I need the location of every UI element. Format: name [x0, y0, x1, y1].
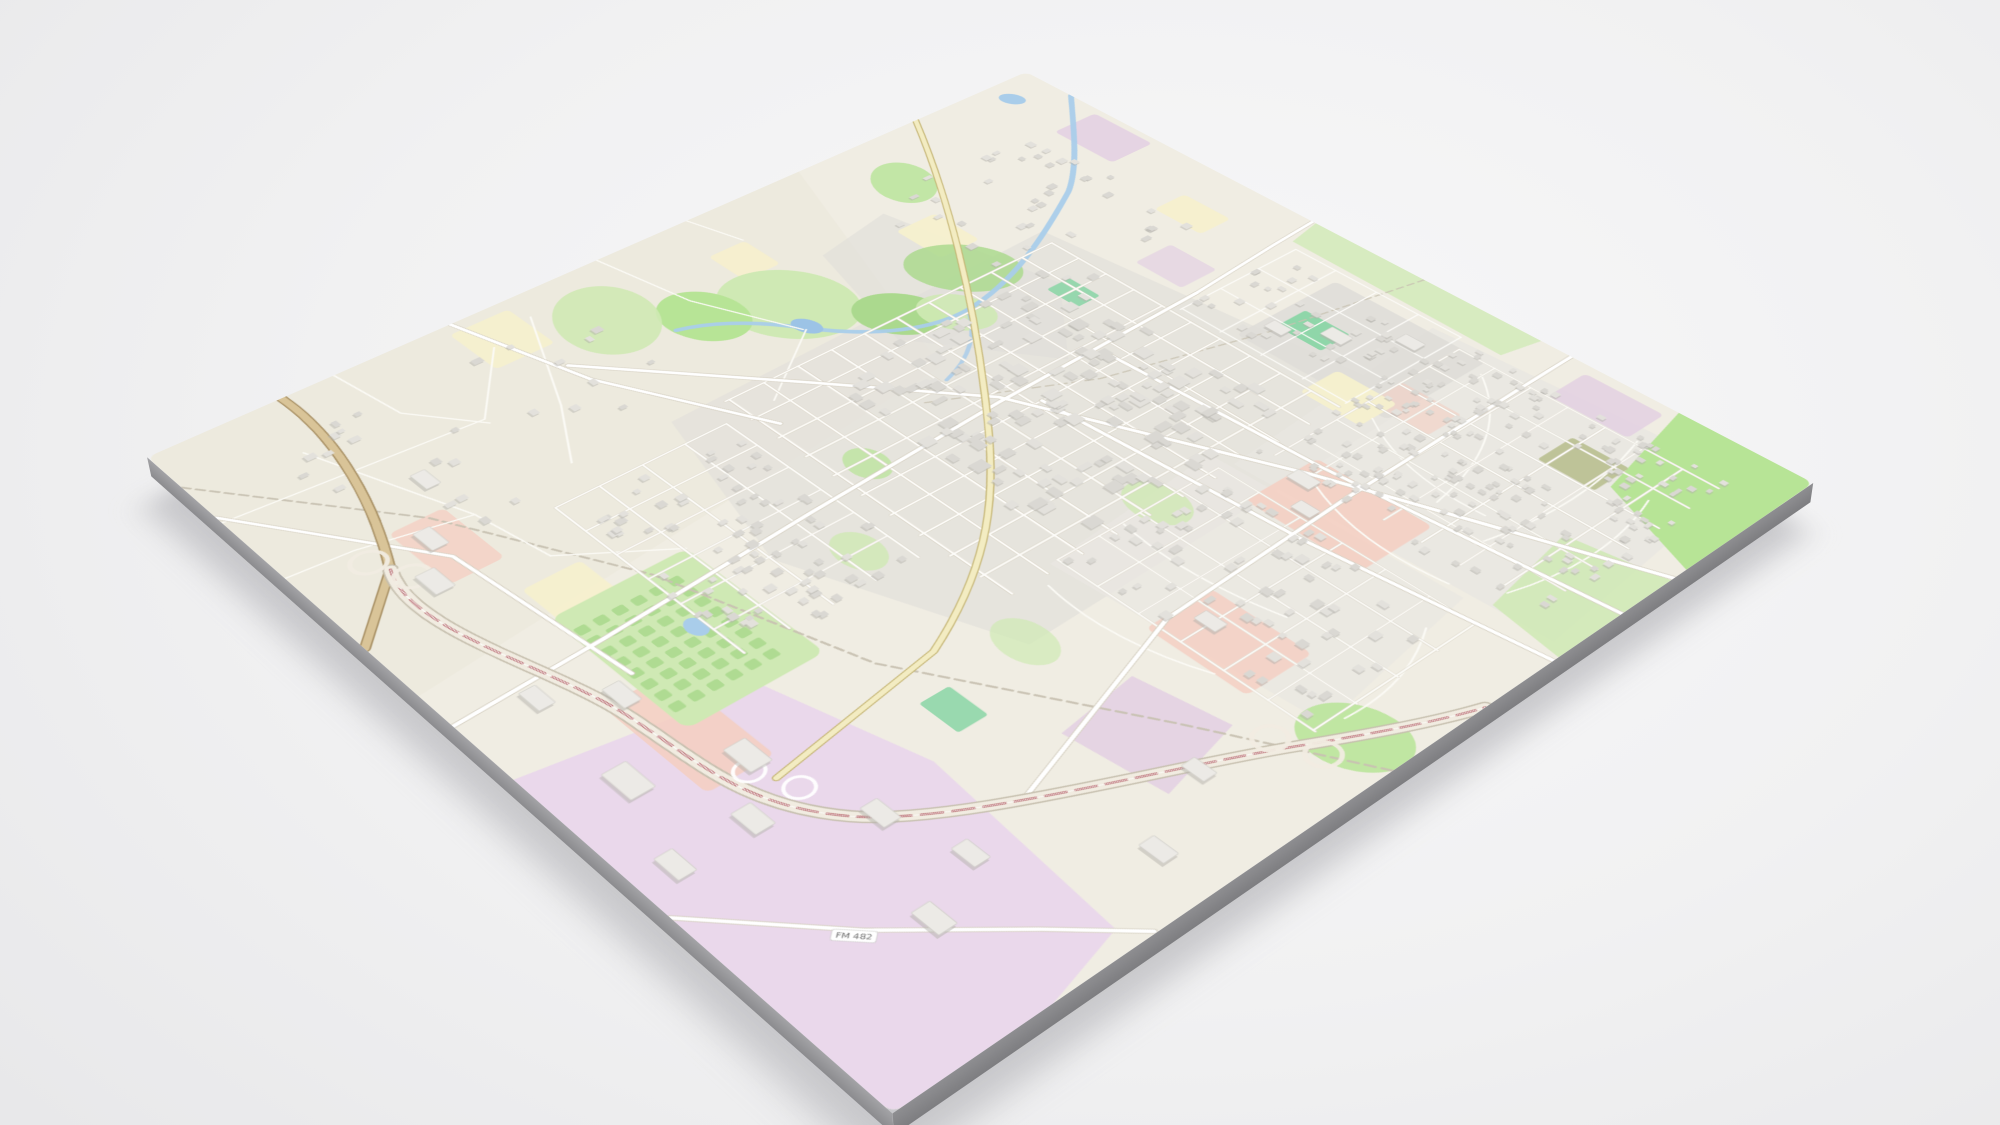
map-surface-svg: FM 482: [147, 72, 1813, 1114]
scene-3d: FM 482: [0, 0, 2000, 1125]
render-backdrop: FM 482: [0, 0, 2000, 1125]
road-label: FM 482: [830, 929, 878, 943]
map-surface: FM 482: [147, 72, 1813, 1114]
map-slab: FM 482: [147, 72, 1813, 1114]
